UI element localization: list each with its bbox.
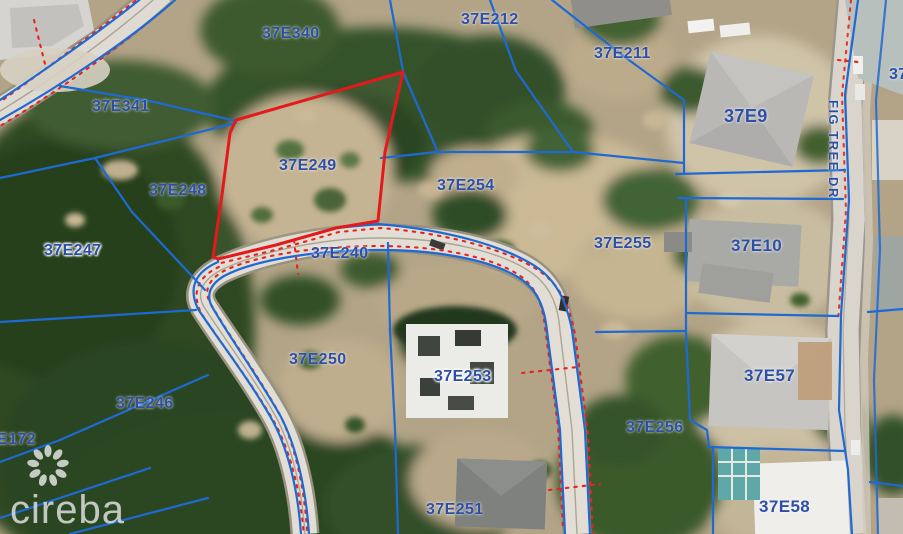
parcel-label-partial-top-right: 37 [889, 66, 903, 84]
aerial-basemap [0, 0, 903, 534]
parcel-label-37E255: 37E255 [594, 235, 652, 253]
parcel-label-37E253: 37E253 [434, 368, 492, 386]
map-viewport: 37E340 37E212 37E211 37E341 37E9 37E248 … [0, 0, 903, 534]
parcel-label-37E248: 37E248 [149, 182, 207, 200]
parcel-label-37E211: 37E211 [594, 45, 651, 63]
parcel-label-37E246: 37E246 [116, 395, 174, 413]
parcel-label-37E9: 37E9 [724, 106, 768, 127]
parcel-label-37E256: 37E256 [626, 419, 684, 437]
parcel-label-37E251: 37E251 [426, 501, 484, 519]
parcel-label-37E250: 37E250 [289, 351, 347, 369]
parcel-label-37E249: 37E249 [279, 157, 337, 175]
parcel-label-37E341: 37E341 [92, 98, 150, 116]
parcel-label-37E58: 37E58 [759, 497, 810, 517]
parcel-label-37E57: 37E57 [744, 366, 795, 386]
parcel-label-37E247: 37E247 [44, 242, 102, 260]
parcel-label-37E340: 37E340 [262, 25, 320, 43]
parcel-label-37E212: 37E212 [461, 11, 519, 29]
parcel-label-E172: E172 [0, 431, 36, 449]
street-label-fig-tree-dr: FIG TREE DR [826, 100, 841, 199]
parcel-label-37E10: 37E10 [731, 236, 782, 256]
parcel-label-37E240: 37E240 [311, 245, 369, 263]
parcel-label-37E254: 37E254 [437, 177, 495, 195]
